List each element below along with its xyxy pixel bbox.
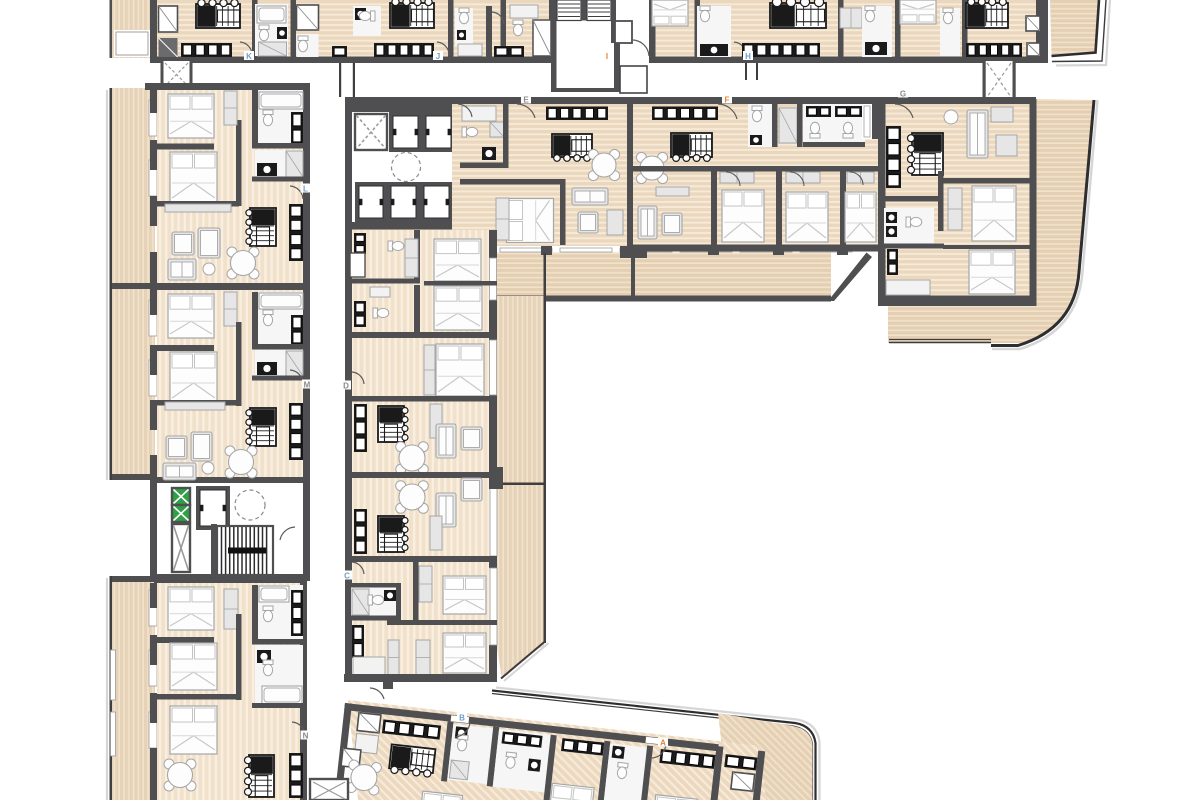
svg-text:F: F: [725, 96, 730, 105]
svg-text:A: A: [660, 739, 666, 748]
svg-text:K: K: [246, 52, 252, 61]
svg-text:H: H: [745, 52, 751, 61]
svg-text:J: J: [436, 52, 440, 61]
svg-text:I: I: [606, 52, 608, 61]
svg-text:L: L: [303, 185, 308, 194]
svg-text:N: N: [303, 732, 309, 741]
svg-text:B: B: [459, 714, 465, 723]
svg-text:E: E: [523, 96, 529, 105]
svg-text:D: D: [343, 382, 349, 391]
svg-text:M: M: [304, 381, 311, 390]
svg-text:G: G: [900, 90, 906, 99]
svg-text:C: C: [344, 572, 350, 581]
